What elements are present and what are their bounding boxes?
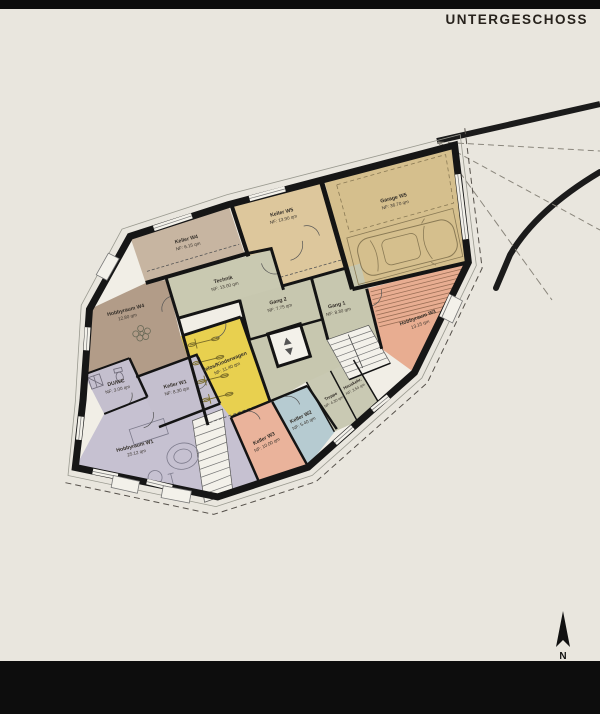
bottom-bar	[0, 661, 600, 714]
page-title: UNTERGESCHOSS	[445, 12, 588, 27]
north-label: N	[559, 651, 566, 662]
floorplan-canvas: UNTERGESCHOSS	[0, 0, 600, 714]
floorplan-sheet: UNTERGESCHOSS	[0, 0, 600, 714]
top-bar	[0, 0, 600, 9]
